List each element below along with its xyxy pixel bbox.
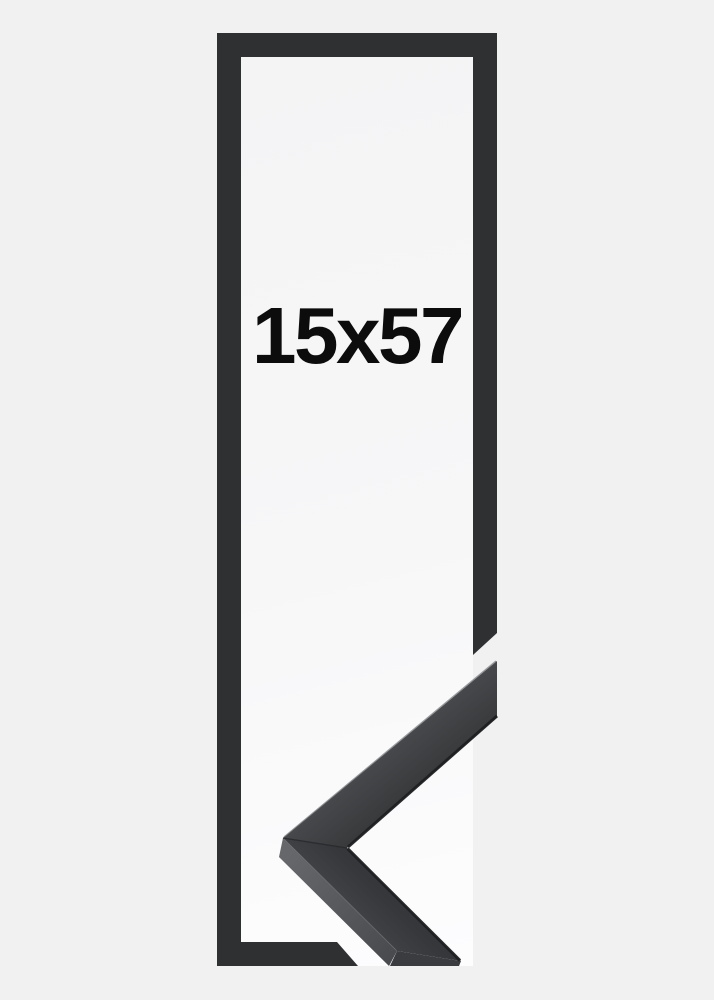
frame-size-diagram bbox=[0, 0, 714, 1000]
product-image: 15x57 bbox=[0, 0, 714, 1000]
size-label: 15x57 bbox=[0, 296, 714, 376]
frame-outline-top bbox=[217, 33, 497, 57]
frame-outline-bottom bbox=[217, 942, 358, 966]
frame-outline-left bbox=[217, 33, 241, 966]
